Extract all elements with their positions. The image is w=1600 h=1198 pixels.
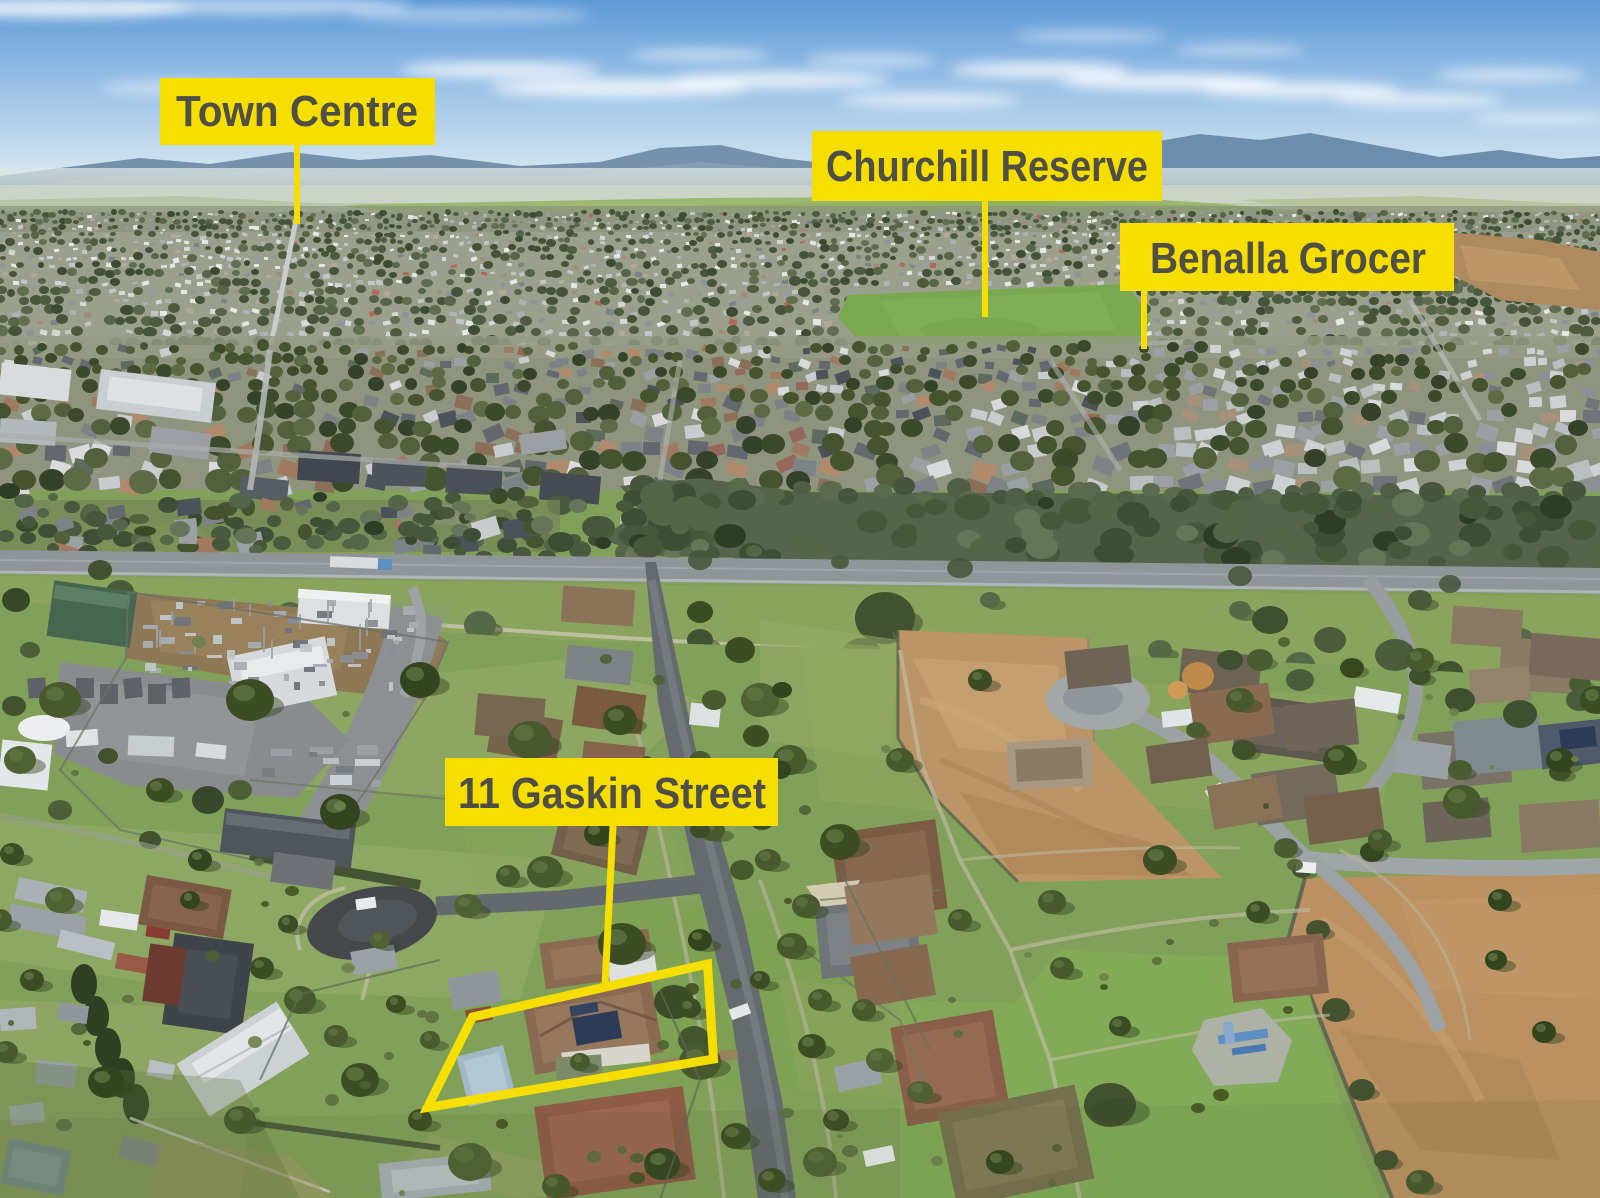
svg-text:11 Gaskin Street: 11 Gaskin Street — [458, 769, 766, 818]
svg-text:Churchill Reserve: Churchill Reserve — [826, 142, 1148, 191]
svg-text:Benalla Grocer: Benalla Grocer — [1150, 234, 1426, 283]
svg-text:Town Centre: Town Centre — [176, 87, 418, 136]
